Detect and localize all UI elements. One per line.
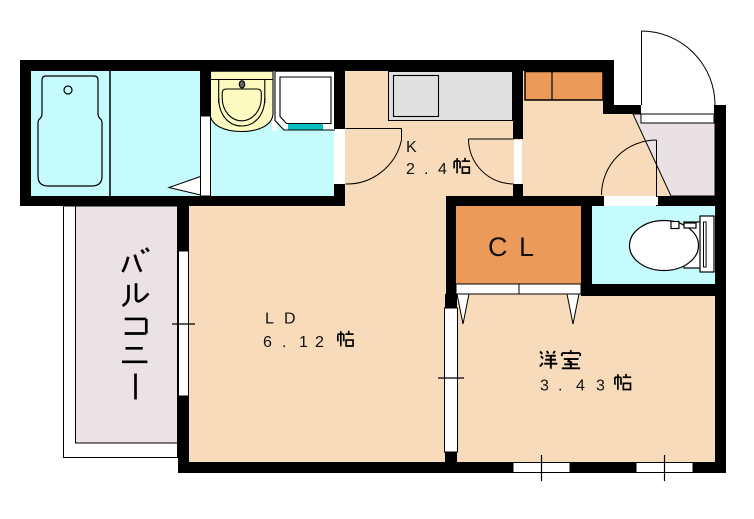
svg-text:L: L <box>519 232 534 262</box>
svg-text:C: C <box>488 232 508 262</box>
svg-text:2: 2 <box>406 161 415 178</box>
svg-text:4: 4 <box>438 161 447 178</box>
svg-text:.: . <box>424 161 428 178</box>
svg-text:.: . <box>282 334 286 351</box>
svg-text:3: 3 <box>596 378 605 395</box>
svg-text:L: L <box>265 311 274 328</box>
svg-text:.: . <box>558 378 562 395</box>
svg-text:4: 4 <box>576 378 585 395</box>
svg-text:3: 3 <box>540 378 549 395</box>
svg-text:1: 1 <box>299 334 308 351</box>
svg-text:K: K <box>406 139 417 156</box>
svg-text:6: 6 <box>263 334 272 351</box>
svg-text:D: D <box>284 311 296 328</box>
svg-text:2: 2 <box>315 334 324 351</box>
